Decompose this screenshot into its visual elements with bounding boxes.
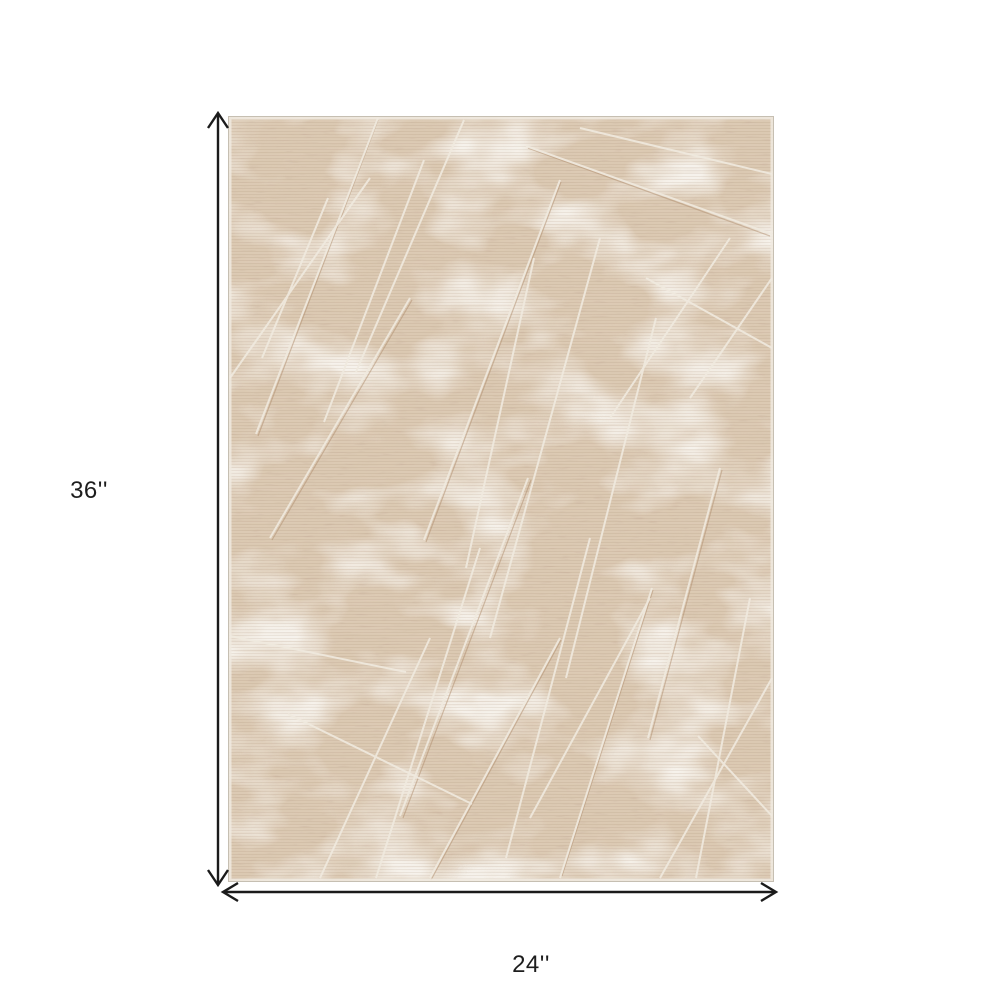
dimension-arrows bbox=[0, 0, 1000, 1000]
height-dimension-arrow bbox=[208, 113, 228, 885]
height-dimension-label: 36'' bbox=[70, 477, 108, 505]
width-dimension-label: 24'' bbox=[512, 951, 550, 979]
rug-dimension-diagram: 36'' 24'' bbox=[0, 0, 1000, 1000]
width-dimension-arrow bbox=[223, 883, 776, 901]
